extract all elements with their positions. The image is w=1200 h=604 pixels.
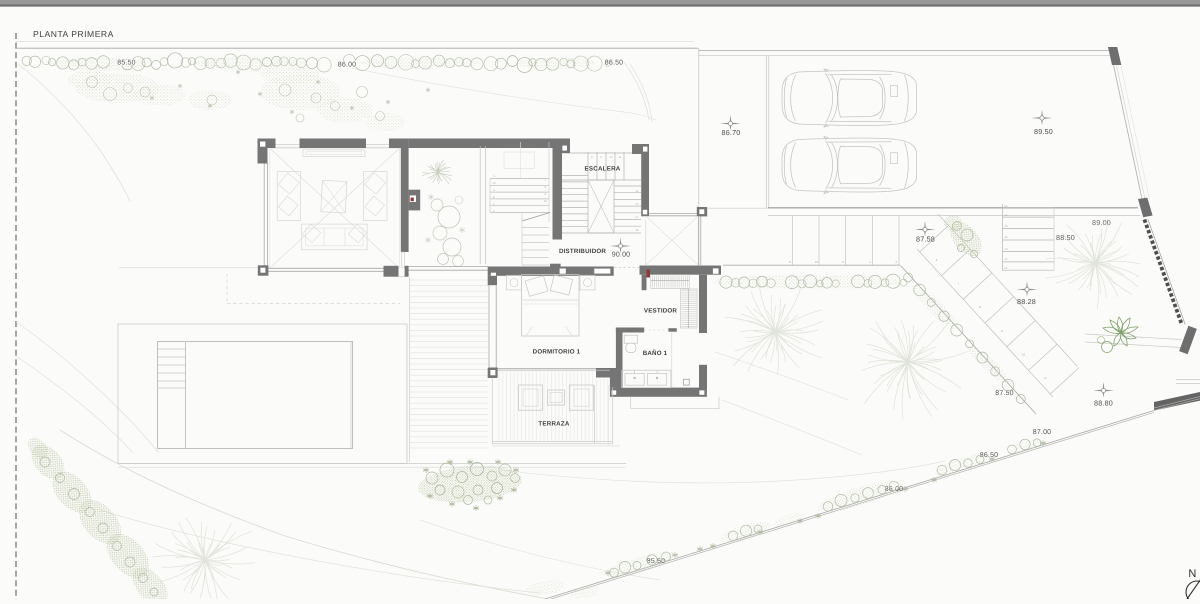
svg-text:10: 10	[609, 156, 613, 159]
svg-text:21: 21	[1004, 267, 1008, 270]
svg-text:24: 24	[1004, 236, 1008, 239]
svg-text:8: 8	[979, 305, 981, 309]
svg-text:PLANTA PRIMERA: PLANTA PRIMERA	[33, 29, 114, 39]
svg-text:89.00: 89.00	[1092, 218, 1111, 227]
svg-text:8: 8	[789, 260, 791, 264]
svg-text:88.28: 88.28	[1017, 297, 1036, 306]
svg-text:85.50: 85.50	[117, 60, 136, 67]
svg-text:6: 6	[936, 258, 938, 262]
svg-text:7: 7	[957, 281, 959, 285]
svg-text:90.00: 90.00	[612, 252, 631, 259]
svg-text:4: 4	[869, 260, 871, 264]
svg-text:18: 18	[635, 229, 639, 232]
svg-text:ESCALERA: ESCALERA	[584, 166, 620, 173]
svg-text:22: 22	[1004, 258, 1008, 261]
svg-text:DORMITORIO 1: DORMITORIO 1	[533, 349, 581, 356]
svg-text:3: 3	[842, 260, 844, 264]
svg-text:13: 13	[635, 190, 639, 193]
svg-text:15: 15	[635, 203, 639, 206]
svg-text:10: 10	[1022, 353, 1026, 357]
svg-text:87.50: 87.50	[995, 390, 1014, 397]
svg-text:86.70: 86.70	[722, 128, 741, 137]
svg-text:23: 23	[1004, 248, 1008, 251]
svg-text:17: 17	[635, 216, 639, 219]
svg-text:TERRAZA: TERRAZA	[538, 421, 570, 428]
svg-text:88.80: 88.80	[1094, 399, 1113, 408]
svg-text:9: 9	[1001, 329, 1003, 333]
svg-text:25: 25	[1004, 225, 1008, 228]
svg-text:87.00: 87.00	[1033, 429, 1052, 436]
svg-text:10: 10	[492, 182, 496, 185]
svg-text:11: 11	[618, 156, 621, 159]
svg-text:86.00: 86.00	[338, 62, 357, 69]
svg-text:10: 10	[815, 260, 819, 264]
svg-text:86.50: 86.50	[605, 60, 624, 67]
svg-text:DISTRIBUIDOR: DISTRIBUIDOR	[559, 248, 606, 255]
svg-text:14: 14	[1004, 214, 1008, 217]
svg-text:N: N	[1188, 568, 1196, 580]
svg-text:5: 5	[896, 260, 898, 264]
svg-text:26: 26	[1004, 205, 1008, 208]
svg-text:88.50: 88.50	[1056, 233, 1075, 242]
svg-text:89.50: 89.50	[1034, 127, 1053, 136]
svg-text:10: 10	[544, 200, 548, 203]
svg-text:87.58: 87.58	[916, 235, 935, 244]
svg-text:11: 11	[1044, 376, 1048, 380]
svg-text:VESTIDOR: VESTIDOR	[644, 308, 678, 315]
svg-text:BAÑO 1: BAÑO 1	[643, 349, 668, 357]
